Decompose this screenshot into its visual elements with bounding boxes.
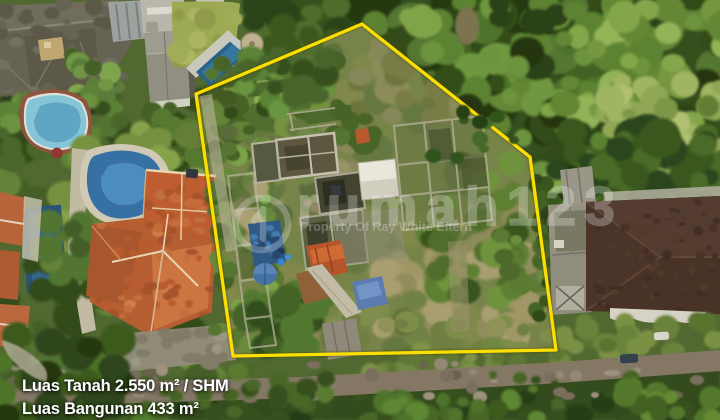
svg-text:Property Of Ray White Eltern: Property Of Ray White Eltern bbox=[300, 220, 472, 234]
